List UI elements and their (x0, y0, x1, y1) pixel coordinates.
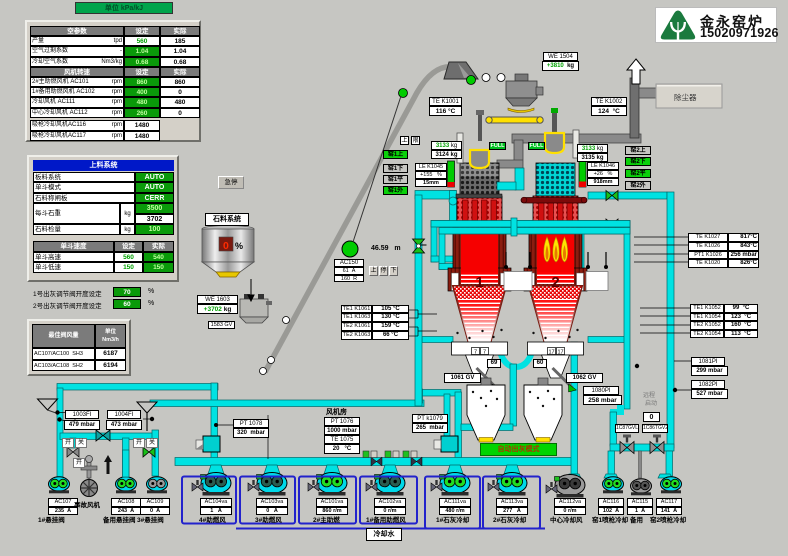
svg-text:0: 0 (223, 240, 229, 252)
svg-text:%: % (235, 241, 243, 251)
svg-text:1: 1 (475, 274, 483, 291)
svg-text:2: 2 (551, 274, 559, 291)
